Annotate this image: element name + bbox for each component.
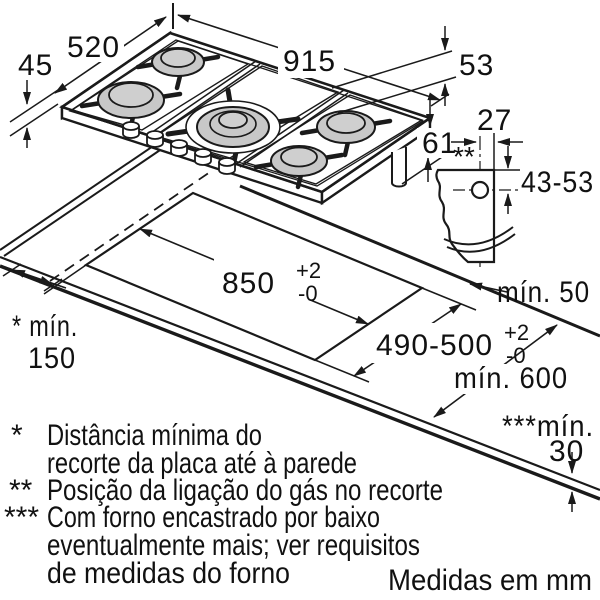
footnote-3-line3: de medidas do forno — [47, 557, 290, 590]
dim-53-label: 53 — [459, 49, 494, 82]
dim-min50-label: mín. 50 — [497, 276, 590, 309]
gas-connection-hole — [472, 182, 488, 198]
dim-min150-value: 150 — [28, 342, 76, 375]
dim-min600-label: mín. 600 — [454, 362, 568, 395]
hob-installation-diagram: 850 +2 -0 490-500 +2 -0 * mín. 150 mín. … — [0, 0, 600, 600]
dim-min150-label: * mín. — [12, 310, 78, 343]
dim-27-label: 27 — [477, 104, 512, 137]
footnote-3-marker: *** — [4, 501, 39, 534]
units-note: Medidas em mm — [388, 564, 592, 597]
gas-position-marker: ** — [453, 141, 475, 172]
dim-490-500-label: 490-500 — [376, 329, 493, 362]
dim-520-label: 520 — [67, 31, 120, 64]
hob-foot — [392, 147, 406, 187]
dim-850-label: 850 — [222, 267, 275, 300]
dim-490-tol-plus: +2 — [504, 320, 529, 345]
dim-915-label: 915 — [283, 45, 336, 78]
diagram-svg: 850 +2 -0 490-500 +2 -0 * mín. 150 mín. … — [0, 0, 600, 600]
dim-43-53-label: 43-53 — [521, 166, 594, 199]
footnote-1-marker: * — [11, 419, 23, 452]
dim-min30-value: 30 — [549, 435, 584, 468]
dim-45-label: 45 — [18, 49, 53, 82]
dim-850-tol-minus: -0 — [298, 281, 318, 306]
dim-850-tol-plus: +2 — [296, 258, 321, 283]
